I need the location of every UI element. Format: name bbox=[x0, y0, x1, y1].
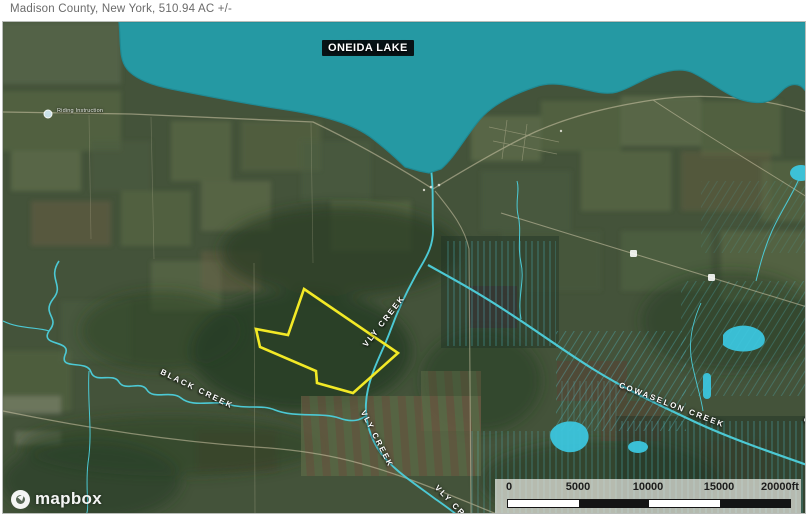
mapbox-wordmark: mapbox bbox=[35, 489, 102, 509]
oneida-lake-label: ONEIDA LAKE bbox=[322, 40, 414, 56]
scale-tick-0: 0 bbox=[506, 481, 512, 493]
scale-bar: 0 5000 10000 15000 20000ft bbox=[495, 479, 801, 513]
satellite-map-svg bbox=[3, 22, 806, 514]
mapbox-attribution[interactable]: mapbox bbox=[11, 489, 102, 509]
poi-marker-icon bbox=[44, 110, 52, 118]
scale-bar-segments bbox=[507, 499, 791, 508]
scale-tick-20000: 20000ft bbox=[761, 481, 799, 493]
scale-tick-15000: 15000 bbox=[704, 481, 735, 493]
listing-title: Madison County, New York, 510.94 AC +/- bbox=[10, 3, 232, 15]
scale-tick-10000: 10000 bbox=[633, 481, 664, 493]
scale-bar-ticks: 0 5000 10000 15000 20000ft bbox=[495, 481, 801, 495]
mapbox-logo-icon bbox=[11, 490, 30, 509]
page: Madison County, New York, 510.94 AC +/- bbox=[0, 0, 808, 526]
scale-tick-5000: 5000 bbox=[566, 481, 590, 493]
poi-label: Riding Instruction bbox=[57, 108, 103, 114]
map-canvas: ONEIDA LAKE BLACK CREEK VLY CREEK VLY CR… bbox=[2, 21, 806, 514]
